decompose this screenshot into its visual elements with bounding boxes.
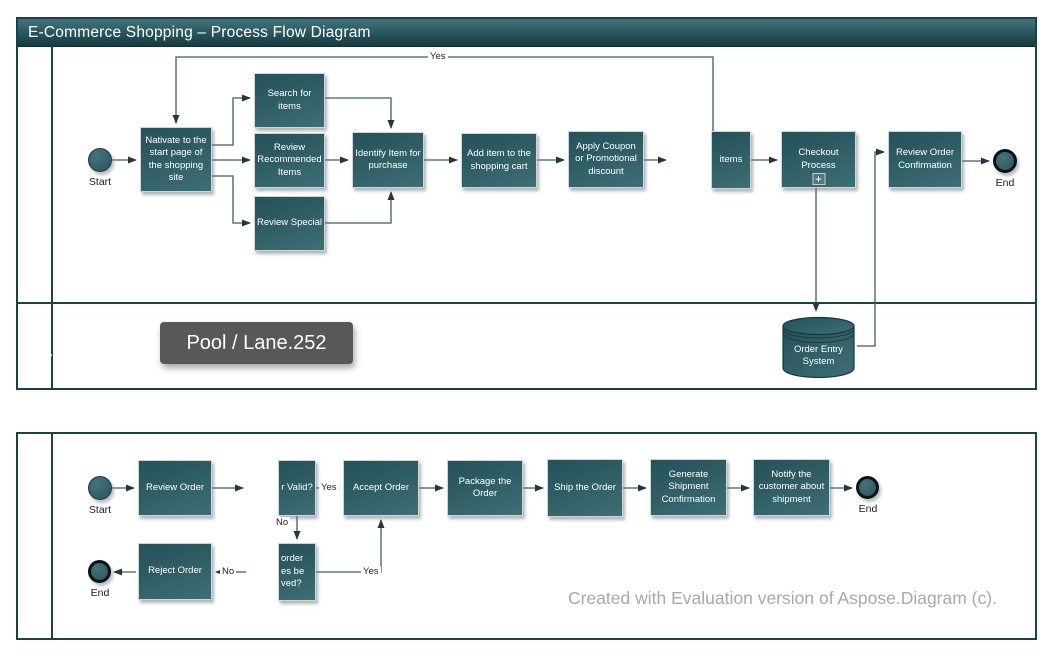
start-event-bottom-label: Start bbox=[80, 504, 120, 516]
end-event-bottom-left-label: End bbox=[82, 587, 118, 599]
task-review-order[interactable]: Review Order bbox=[138, 460, 212, 516]
task-notify-customer[interactable]: Notify the customer about shipment bbox=[753, 459, 830, 516]
edge-label-yes-top: Yes bbox=[428, 51, 448, 62]
task-navigate[interactable]: Nativate to the start page of the shoppi… bbox=[140, 127, 212, 192]
task-ship-order[interactable]: Ship the Order bbox=[547, 459, 623, 517]
task-resolved-clipped[interactable]: order es be ved? bbox=[278, 543, 316, 601]
task-package-order[interactable]: Package the Order bbox=[447, 460, 523, 516]
start-event-bottom[interactable] bbox=[88, 476, 112, 500]
end-event-bottom-left[interactable] bbox=[88, 560, 111, 583]
task-accept-order[interactable]: Accept Order bbox=[343, 460, 419, 516]
pool-lane-tooltip: Pool / Lane.252 bbox=[160, 322, 353, 364]
edge-label-yes-valid: Yes bbox=[319, 482, 339, 493]
edge-label-no-reject: No bbox=[220, 566, 236, 577]
end-event-bottom-right[interactable] bbox=[856, 476, 879, 499]
lane-back-office-label: Back Office (Order Fullfillment) bbox=[28, 461, 41, 611]
watermark-text: Created with Evaluation version of Aspos… bbox=[568, 588, 997, 609]
lane-order-entry-system[interactable]: Order Entry System bbox=[18, 304, 53, 388]
task-identify-item[interactable]: Identify Item for purchase bbox=[352, 132, 424, 188]
diagram-canvas: E-Commerce Shopping – Process Flow Diagr… bbox=[0, 0, 1054, 652]
pool-title: E-Commerce Shopping – Process Flow Diagr… bbox=[18, 24, 371, 42]
start-event-top-label: Start bbox=[80, 176, 120, 188]
lane-order-entry-label: Order Entry System bbox=[16, 328, 52, 363]
task-review-order-confirmation[interactable]: Review Order Confirmation bbox=[888, 131, 962, 188]
end-event-bottom-right-label: End bbox=[850, 503, 886, 515]
task-review-recommended[interactable]: Review Recommended Items bbox=[254, 133, 325, 188]
edge-label-no-valid: No bbox=[274, 517, 290, 528]
lane-customer-label: Customer bbox=[27, 146, 42, 202]
task-checkout-process[interactable]: Checkout Process + bbox=[781, 131, 856, 188]
lane-back-office[interactable]: Back Office (Order Fullfillment) bbox=[18, 434, 53, 638]
start-event-top[interactable] bbox=[88, 148, 112, 172]
task-generate-confirmation[interactable]: Generate Shipment Confirmation bbox=[650, 459, 727, 516]
end-event-top-label: End bbox=[987, 177, 1023, 189]
subprocess-plus-icon[interactable]: + bbox=[812, 173, 825, 185]
task-reject-order[interactable]: Reject Order bbox=[138, 543, 212, 600]
task-items-clipped[interactable]: items bbox=[711, 131, 751, 189]
task-add-item[interactable]: Add item to the shopping cart bbox=[461, 133, 537, 188]
lane-customer[interactable]: Customer bbox=[18, 46, 53, 302]
pool-header: E-Commerce Shopping – Process Flow Diagr… bbox=[18, 19, 1035, 47]
edge-label-yes-resolved: Yes bbox=[361, 566, 381, 577]
end-event-top[interactable] bbox=[993, 149, 1017, 173]
task-search-items[interactable]: Search for items bbox=[254, 73, 325, 128]
task-apply-coupon[interactable]: Apply Coupon or Promotional discount bbox=[568, 131, 644, 188]
datastore-order-entry-system[interactable]: Order Entry System bbox=[780, 314, 857, 380]
datastore-label: Order Entry System bbox=[780, 344, 857, 369]
task-review-special[interactable]: Review Special bbox=[254, 196, 325, 251]
lane-divider bbox=[18, 302, 1035, 304]
task-order-valid-clipped[interactable]: r Valid? bbox=[278, 460, 316, 516]
